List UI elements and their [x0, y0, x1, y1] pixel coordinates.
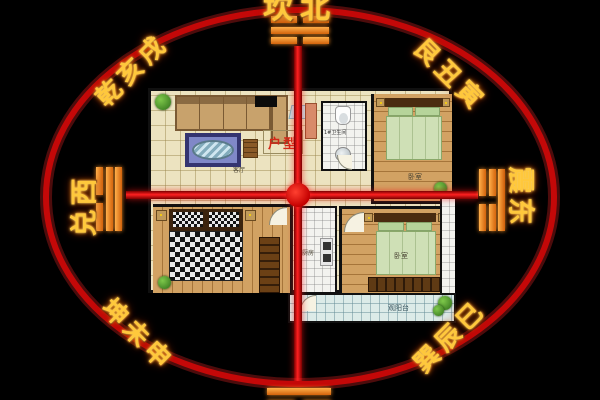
- bed-duvet: [386, 116, 442, 160]
- bedroom-top-right: 卧室: [371, 94, 452, 204]
- li-trigram-icon: [267, 388, 331, 400]
- plant-icon: [155, 94, 171, 110]
- door-arc: [337, 155, 352, 170]
- wardrobe: [368, 277, 442, 292]
- bed-duvet-checkered: [169, 231, 243, 281]
- kitchen-label: 厨房: [302, 248, 314, 257]
- nightstand: [156, 210, 167, 221]
- sofa-cushion: [224, 97, 247, 129]
- door-arc: [269, 207, 287, 225]
- north-label: 坎北: [263, 0, 337, 27]
- bedroom-label: 卧室: [394, 251, 408, 261]
- living-room-label: 客厅: [233, 165, 245, 174]
- sofa-cushion: [177, 97, 200, 129]
- toilet-icon: [335, 106, 351, 125]
- bathroom-label: 1#卫生间: [324, 129, 346, 136]
- nightstand: [364, 213, 373, 222]
- tv-cabinet: [255, 96, 277, 107]
- side-balcony: [440, 199, 455, 294]
- rug: [185, 133, 241, 167]
- burner: [323, 254, 331, 262]
- bedroom-bottom-right: 卧室: [339, 206, 452, 294]
- balcony-label: 观阳台: [388, 303, 409, 313]
- pillow: [415, 107, 440, 116]
- east-label: 震东: [504, 167, 543, 229]
- side-table: [243, 139, 258, 158]
- burner: [323, 242, 331, 250]
- coffee-table: [192, 140, 234, 160]
- wardrobe: [259, 237, 280, 293]
- zhen-trigram-icon: [479, 169, 505, 231]
- bed-headboard: [374, 213, 436, 222]
- nightstand: [376, 98, 385, 107]
- door-arc: [300, 295, 316, 311]
- pillow: [209, 212, 239, 227]
- kitchen: 厨房: [297, 206, 337, 294]
- pillow: [388, 107, 413, 116]
- bathroom: 1#卫生间: [321, 101, 367, 171]
- west-label: 兑西: [63, 175, 102, 237]
- southwest-label: 坤未申: [94, 289, 183, 378]
- pillow: [173, 212, 203, 227]
- pillow: [378, 222, 404, 231]
- master-bedroom: [153, 204, 293, 293]
- crosshair-vertical-line: [294, 46, 302, 385]
- sofa-cushion: [200, 97, 223, 129]
- bedroom-label: 卧室: [408, 172, 422, 182]
- stove-icon: [320, 238, 333, 266]
- bed-headboard: [385, 98, 443, 107]
- entry-door: [305, 103, 317, 139]
- center-point: [286, 183, 310, 207]
- door-arc: [344, 212, 364, 232]
- balcony: 观阳台: [288, 293, 456, 323]
- pillow: [406, 222, 432, 231]
- feng-shui-bagua-floorplan-diagram: 客厅 户型 1#卫生间 卧室: [0, 0, 600, 400]
- plant-icon: [158, 276, 171, 289]
- nightstand: [245, 210, 256, 221]
